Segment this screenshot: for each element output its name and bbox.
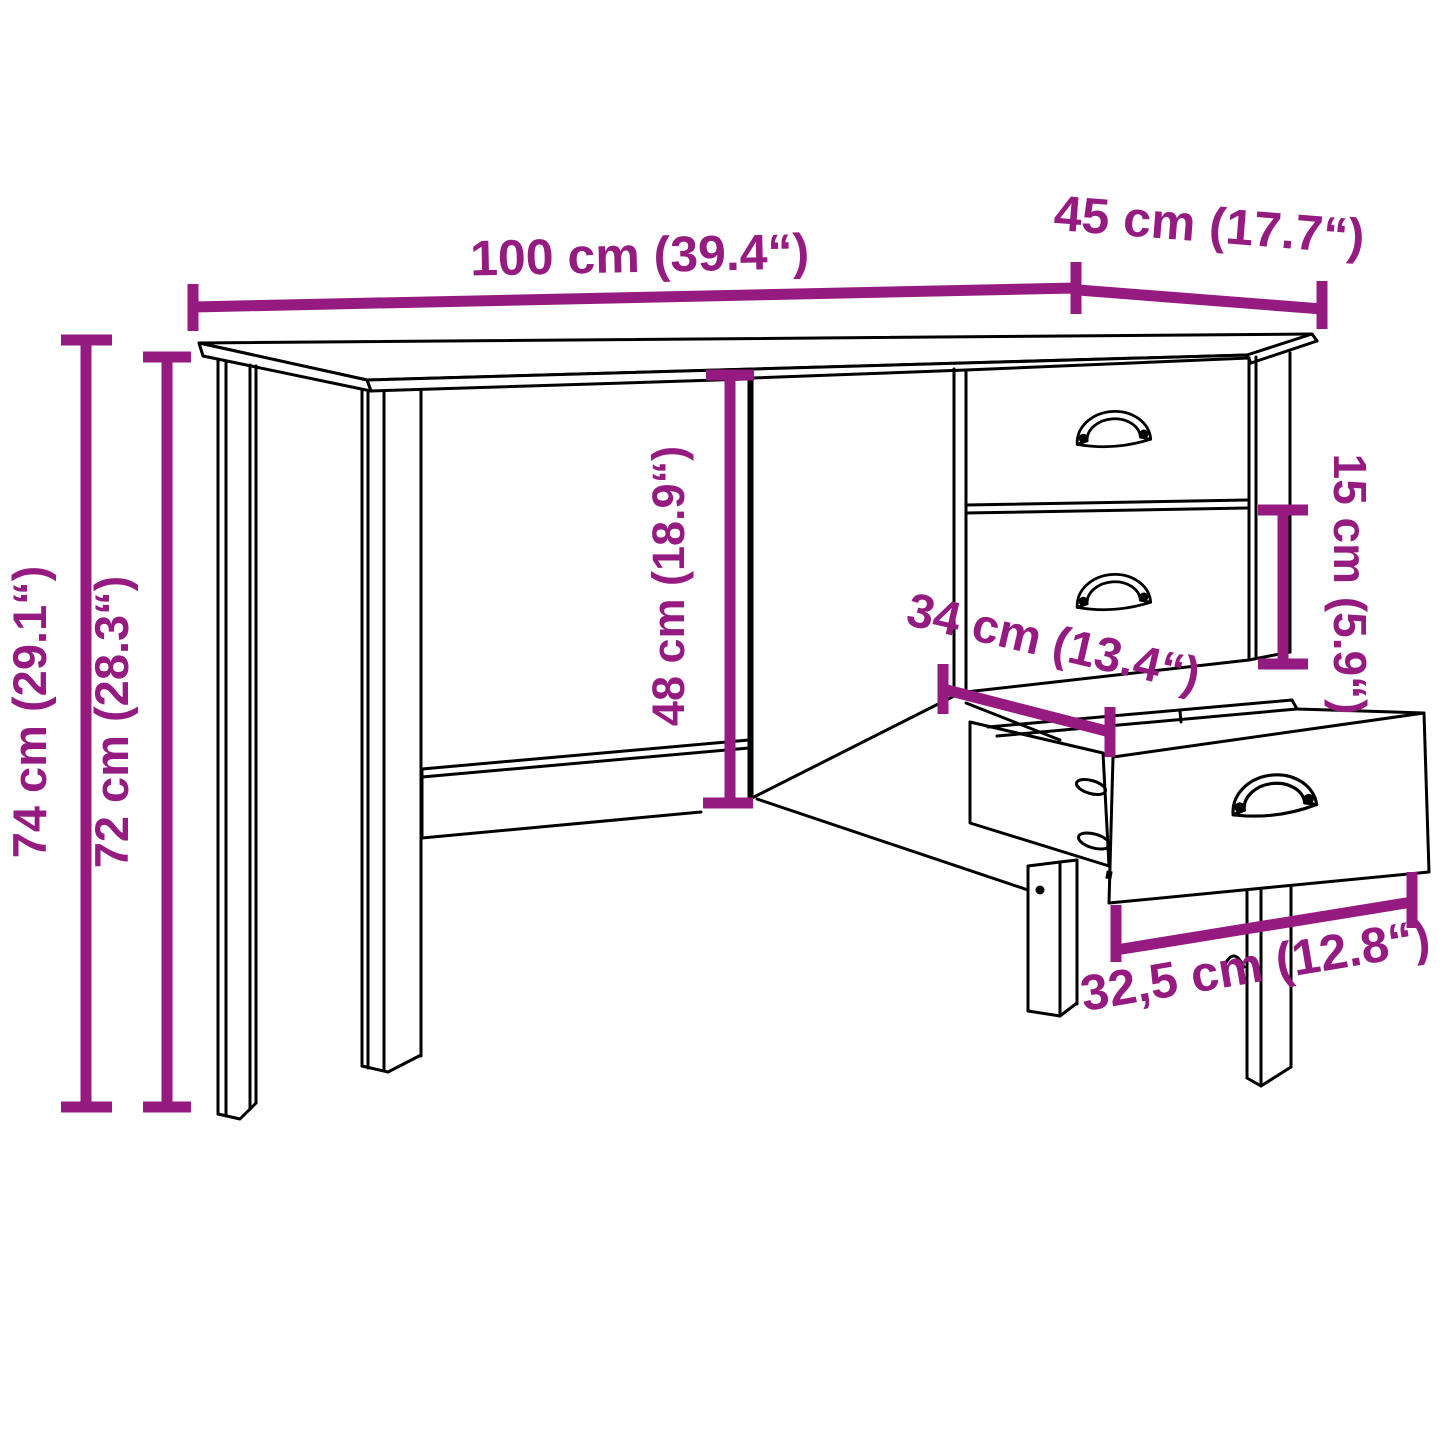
dim-knee-clearance-label: 48 cm (18.9“) bbox=[643, 446, 694, 726]
dimension-diagram: 100 cm (39.4“) 45 cm (17.7“) 74 cm (29.1… bbox=[0, 0, 1445, 1445]
dim-drawer-front-height-label: 15 cm (5.9“) bbox=[1324, 454, 1376, 715]
dim-width-label: 100 cm (39.4“) bbox=[470, 223, 810, 286]
dim-total-height-label: 74 cm (29.1“) bbox=[3, 566, 56, 859]
dim-underdesk-height-label: 72 cm (28.3“) bbox=[85, 576, 138, 869]
desk-line-drawing: 100 cm (39.4“) 45 cm (17.7“) 74 cm (29.1… bbox=[0, 0, 1445, 1445]
bolt-hole bbox=[1036, 886, 1045, 895]
